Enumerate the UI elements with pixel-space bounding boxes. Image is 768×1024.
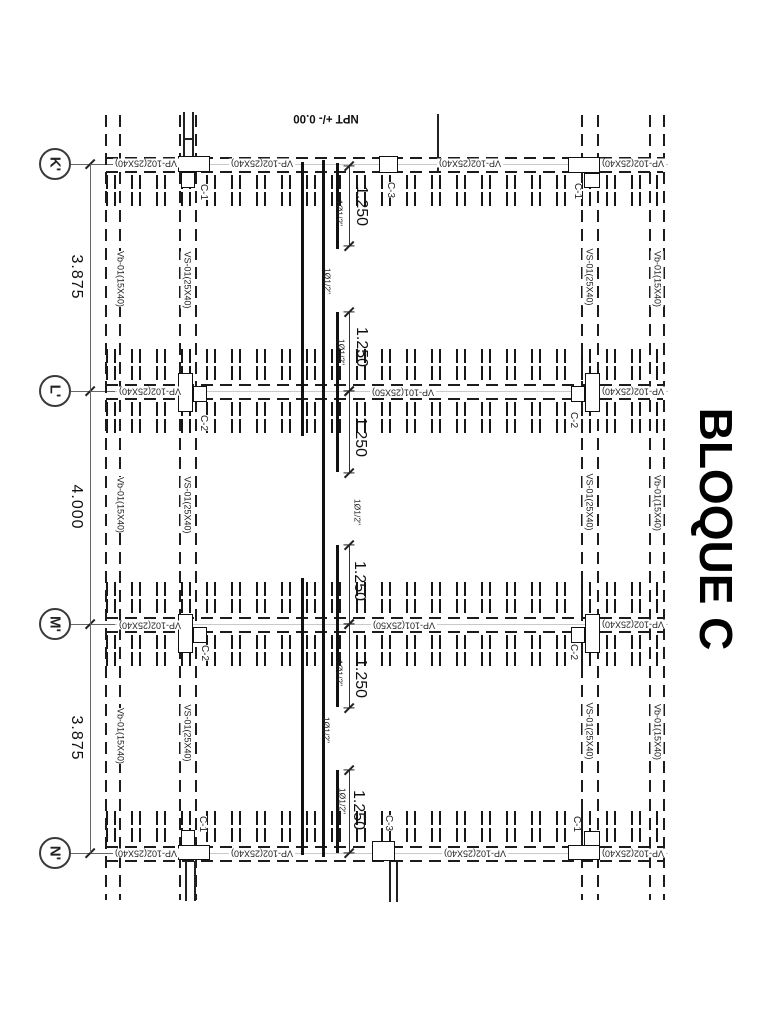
column: [568, 157, 600, 173]
beam-label: VP-102(25X40): [117, 621, 183, 630]
drawing-sheet: K'L'M'N'3.8754.0003.8751.2501.2501.2501.…: [0, 0, 768, 1024]
column: [372, 841, 395, 861]
column: [379, 156, 398, 173]
slab-rebar-band: [106, 599, 663, 613]
beam-edge-line-vertical: [105, 115, 107, 900]
beam-label: VP-102(25X40): [600, 849, 666, 858]
column-label: C-1: [197, 816, 207, 832]
span-dimension-value: 1.250: [351, 561, 367, 601]
axis-leader-line: [71, 853, 115, 854]
column: [181, 172, 195, 188]
beam-label: VS-01(25X40): [583, 473, 596, 530]
axis-leader-line: [71, 164, 115, 165]
grid-bubble-label: N': [48, 846, 63, 860]
column: [584, 173, 600, 188]
dimension-tick-bar: [344, 544, 355, 545]
dimension-tick-bar: [344, 165, 355, 166]
rebar-callout: 1Ø1/2": [335, 200, 344, 226]
wall-line: [194, 861, 196, 901]
wall-line: [183, 112, 185, 157]
axis-leader-line: [71, 624, 115, 625]
rebar-bar: [301, 578, 304, 855]
beam-label: VP-102(25X40): [437, 159, 503, 168]
rebar-callout: 1Ø1/2": [338, 788, 347, 814]
beam-label: VP-102(25X40): [229, 159, 295, 168]
beam-label: Vb-01(15X40): [651, 704, 664, 760]
level-annotation: NPT +/- 0.00: [293, 112, 359, 124]
axis-leader-line: [71, 391, 115, 392]
dimension-line: [349, 391, 350, 473]
span-dimension-value: 1.250: [352, 658, 368, 698]
rebar-callout: 1Ø1/2": [323, 268, 332, 294]
column-label: C-1: [198, 184, 208, 200]
span-dimension-value: 1.250: [353, 186, 369, 226]
dimension-line: [349, 312, 350, 391]
plan-title: BLOQUE C: [689, 408, 743, 651]
beam-label: VS-01(25X40): [583, 702, 596, 759]
slab-rebar-band: [106, 349, 663, 363]
dimension-tick-bar: [344, 623, 355, 624]
column-label: C-3: [383, 815, 393, 831]
wall-line: [183, 138, 192, 140]
rebar-callout: 1Ø1/2": [322, 717, 331, 743]
slab-rebar-band: [106, 582, 663, 596]
grid-bubble-label: K': [48, 157, 63, 171]
beam-edge-line-vertical: [597, 115, 599, 900]
column: [193, 627, 207, 643]
beam-label: VP-102(25X40): [113, 159, 179, 168]
dimension-tick-bar: [344, 852, 355, 853]
rebar-callout: 1Ø1/2": [335, 660, 344, 686]
column-label: C-2: [568, 412, 578, 428]
rebar-bar: [322, 160, 325, 857]
beam-label: VP-101(25X50): [370, 388, 436, 397]
wall-line: [185, 861, 187, 901]
beam-label: VS-01(25X40): [583, 248, 596, 305]
column: [568, 845, 600, 860]
dimension-tick-bar: [344, 390, 355, 391]
wall-line: [192, 112, 194, 157]
axis-spacing-dimension: 3.875: [68, 715, 84, 760]
rebar-callout: 1Ø1/2": [353, 499, 362, 525]
axis-spacing-dimension: 4.000: [68, 484, 84, 529]
column-label: C-2: [199, 645, 209, 661]
dimension-tick-bar: [344, 311, 355, 312]
column: [584, 831, 600, 846]
rebar-bar: [336, 312, 339, 472]
beam-label: VP-102(25X40): [600, 620, 666, 629]
span-dimension-value: 1.250: [350, 790, 366, 830]
beam-label: VS-01(25X40): [181, 704, 194, 761]
wall-line: [396, 861, 398, 902]
beam-label: VS-01(25X40): [181, 476, 194, 533]
beam-label: VP-102(25X40): [600, 387, 666, 396]
dimension-tick-bar: [344, 769, 355, 770]
column-label: C-3: [385, 182, 395, 198]
beam-label: VP-102(25X40): [117, 387, 183, 396]
dimension-tick-bar: [344, 472, 355, 473]
grid-bubble-label: L': [48, 385, 63, 398]
beam-label: VP-102(25X40): [442, 849, 508, 858]
slab-rebar-band: [106, 652, 663, 666]
dimension-tick-bar: [344, 707, 355, 708]
beam-label: VP-102(25X40): [113, 849, 179, 858]
beam-edge-line-vertical: [195, 115, 197, 900]
beam-label: Vb-01(15X40): [114, 251, 127, 307]
column-label: C-2: [568, 644, 578, 660]
column: [571, 627, 585, 643]
column: [193, 386, 207, 402]
beam-label: VP-102(25X40): [229, 849, 295, 858]
rebar-bar: [301, 162, 304, 436]
beam-label: VP-101(25X50): [371, 621, 437, 630]
beam-label: Vb-01(15X40): [651, 251, 664, 307]
dimension-chain-line: [90, 164, 91, 853]
span-dimension-value: 1.250: [352, 417, 368, 457]
beam-label: Vb-01(15X40): [651, 475, 664, 531]
rebar-callout: 1Ø1/2": [337, 339, 346, 365]
axis-spacing-dimension: 3.875: [68, 254, 84, 299]
dimension-line: [349, 624, 350, 708]
column: [178, 156, 210, 172]
beam-label: Vb-01(15X40): [114, 477, 127, 533]
column: [585, 614, 600, 653]
column: [571, 386, 585, 402]
column: [585, 373, 600, 412]
column-label: C-2: [198, 415, 208, 431]
column-label: C-1: [571, 816, 581, 832]
wall-line: [389, 861, 391, 902]
column: [181, 830, 195, 846]
beam-label: Vb-01(15X40): [114, 708, 127, 764]
dimension-tick-bar: [344, 245, 355, 246]
beam-label: VP-102(25X40): [600, 159, 666, 168]
grid-bubble-label: M': [48, 616, 63, 632]
beam-label: VS-01(25X40): [181, 251, 194, 308]
slab-rebar-band: [106, 419, 663, 433]
column: [178, 845, 210, 860]
span-dimension-value: 1.250: [353, 327, 369, 367]
dimension-line: [349, 545, 350, 624]
dimension-line: [349, 166, 350, 246]
column-label: C-1: [572, 183, 582, 199]
